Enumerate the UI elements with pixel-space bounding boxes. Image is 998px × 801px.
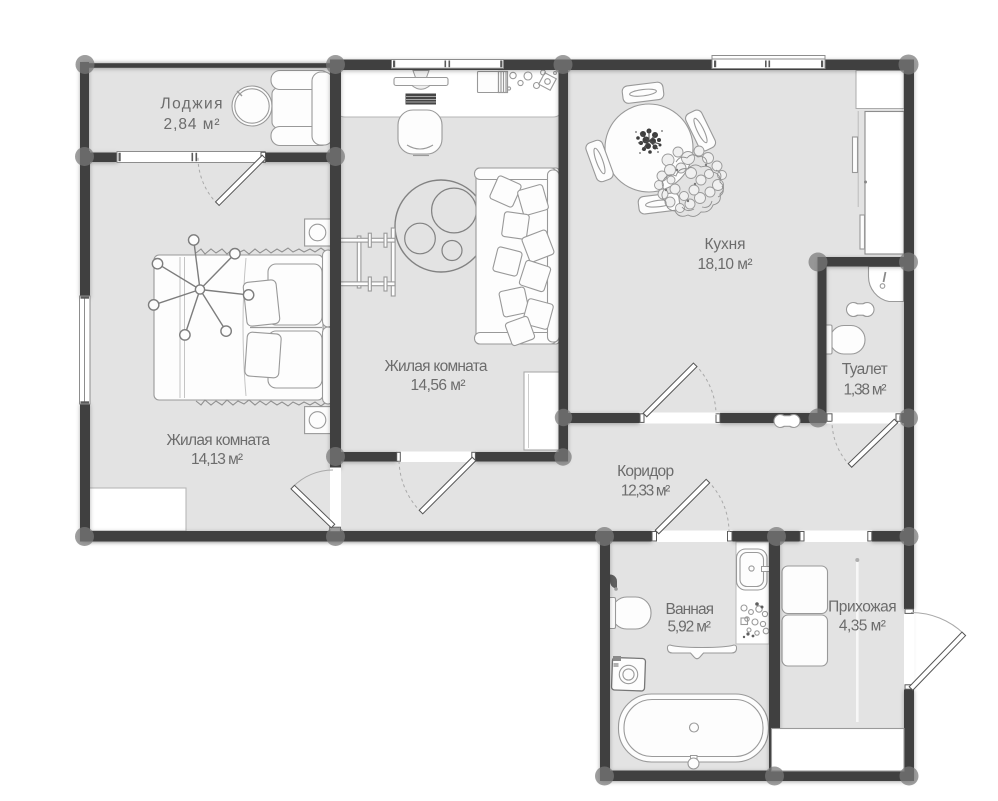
- svg-text:5,92 м²: 5,92 м²: [667, 619, 711, 636]
- svg-text:1,38 м²: 1,38 м²: [844, 382, 887, 399]
- svg-text:Прихожая: Прихожая: [828, 599, 897, 616]
- svg-text:4,35 м²: 4,35 м²: [839, 618, 886, 635]
- svg-text:Жилая комната: Жилая комната: [166, 432, 270, 449]
- svg-text:14,56 м²: 14,56 м²: [411, 377, 466, 394]
- svg-text:2,84 м²: 2,84 м²: [164, 116, 220, 133]
- svg-text:Лоджия: Лоджия: [161, 96, 223, 113]
- svg-text:Ванная: Ванная: [666, 601, 715, 618]
- svg-text:12,33 м²: 12,33 м²: [621, 483, 671, 500]
- svg-text:Туалет: Туалет: [842, 361, 888, 378]
- svg-text:Жилая комната: Жилая комната: [385, 358, 488, 375]
- svg-text:14,13 м²: 14,13 м²: [191, 451, 243, 468]
- svg-text:Кухня: Кухня: [705, 236, 746, 253]
- svg-text:18,10 м²: 18,10 м²: [698, 256, 753, 273]
- svg-text:Коридор: Коридор: [617, 463, 674, 480]
